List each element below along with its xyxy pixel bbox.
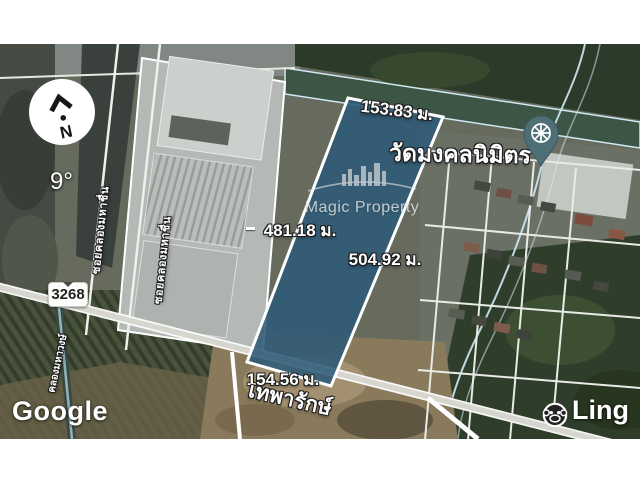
google-logo: Google (12, 396, 108, 427)
measurement-left-label: 481.18 ม. (254, 217, 346, 244)
temple-pin (522, 114, 560, 170)
measurement-right-label: 504.92 ม. (339, 246, 431, 273)
ling-logo: Ling (572, 395, 629, 426)
bearing-label: 9° (50, 168, 73, 196)
monkey-icon (542, 402, 568, 428)
listing-map-image: Magic Property 153.83 ม. 481.18 ม. 504.9… (0, 0, 640, 480)
route-number: 3268 (51, 286, 84, 303)
dharma-wheel-icon (532, 124, 550, 142)
route-shield: 3268 (48, 282, 88, 307)
shield-notch (63, 282, 73, 287)
compass: N (28, 78, 96, 146)
watermark-text: Magic Property (292, 199, 432, 217)
